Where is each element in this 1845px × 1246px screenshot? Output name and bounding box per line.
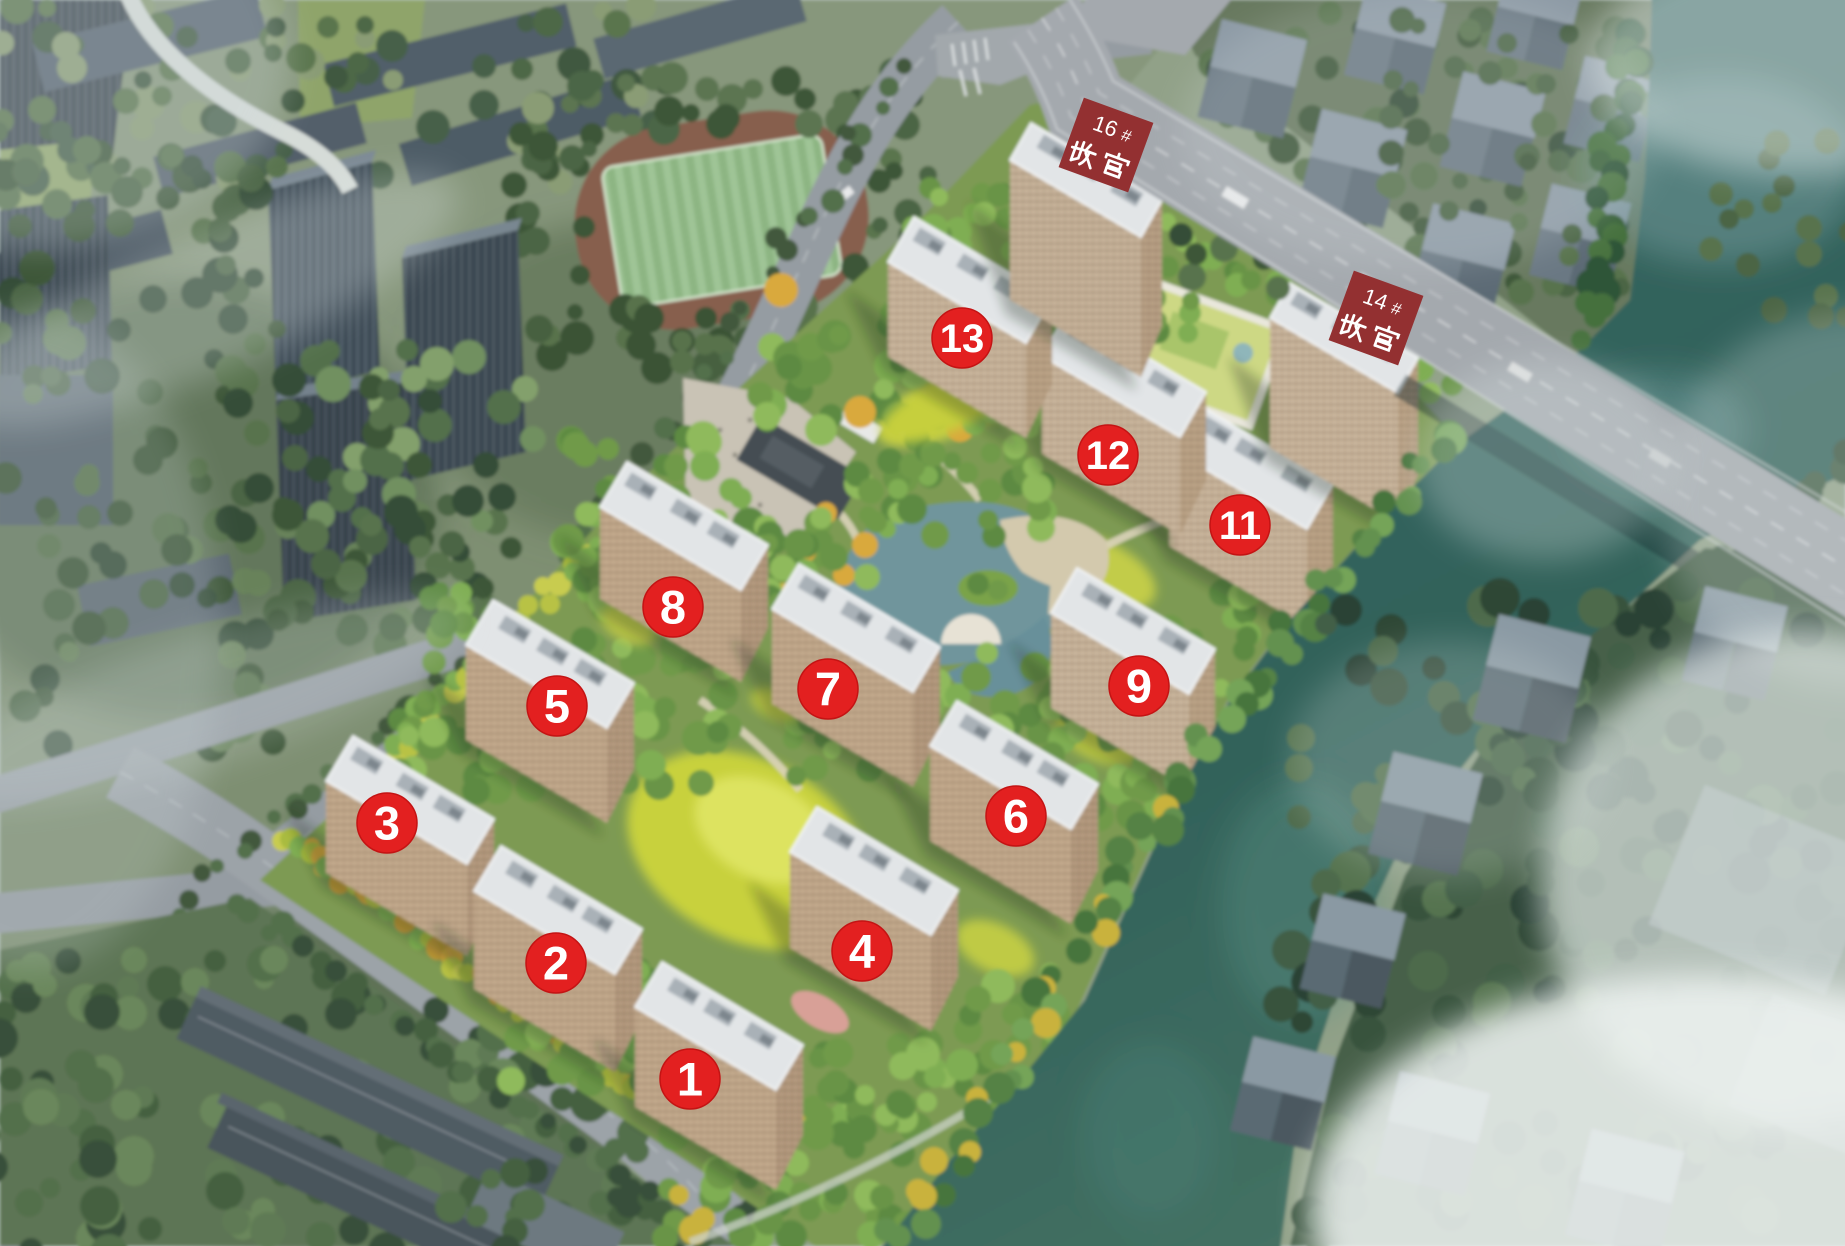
svg-text:13: 13	[940, 317, 985, 361]
svg-text:3: 3	[374, 797, 400, 850]
svg-text:7: 7	[815, 663, 841, 716]
svg-text:11: 11	[1219, 504, 1261, 548]
svg-text:8: 8	[660, 581, 686, 634]
svg-text:12: 12	[1086, 434, 1131, 478]
svg-text:2: 2	[543, 937, 569, 990]
svg-text:6: 6	[1003, 790, 1029, 843]
svg-text:4: 4	[849, 925, 875, 978]
svg-text:1: 1	[677, 1053, 703, 1106]
svg-text:5: 5	[544, 680, 570, 733]
svg-text:9: 9	[1126, 660, 1152, 713]
